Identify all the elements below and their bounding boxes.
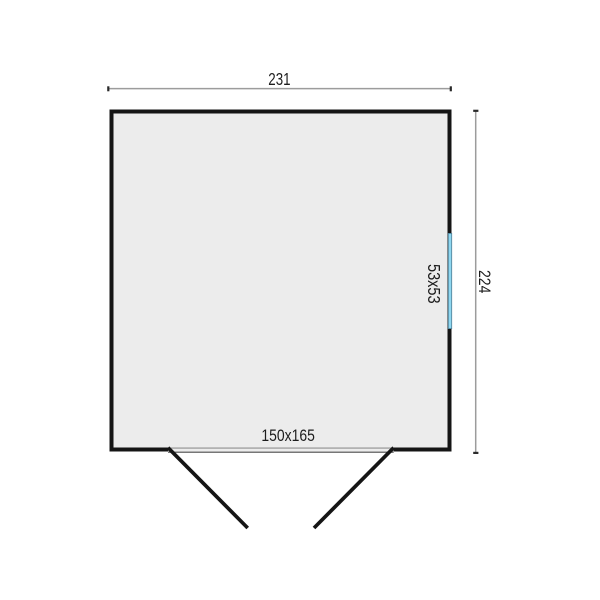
svg-text:53x53: 53x53 [424, 264, 444, 304]
svg-text:224: 224 [475, 270, 494, 293]
svg-text:231: 231 [268, 69, 290, 89]
svg-text:150x165: 150x165 [261, 426, 315, 445]
